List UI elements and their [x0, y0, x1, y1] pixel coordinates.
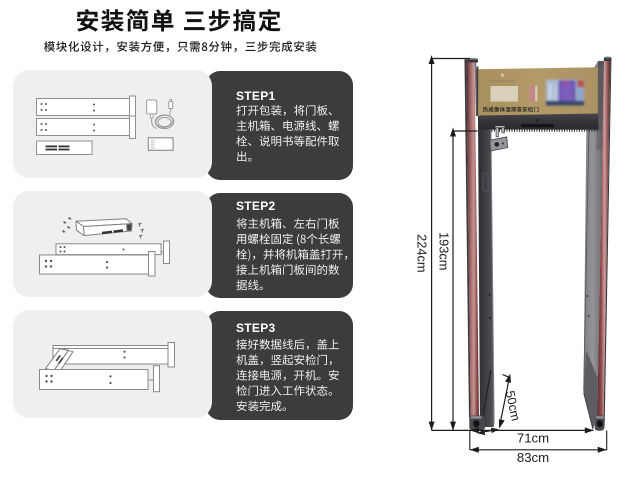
svg-text:71cm: 71cm: [517, 431, 549, 446]
svg-text:50cm: 50cm: [503, 389, 523, 422]
svg-text:224cm: 224cm: [415, 234, 430, 272]
svg-text:83cm: 83cm: [517, 450, 549, 465]
svg-text:193cm: 193cm: [437, 232, 452, 270]
